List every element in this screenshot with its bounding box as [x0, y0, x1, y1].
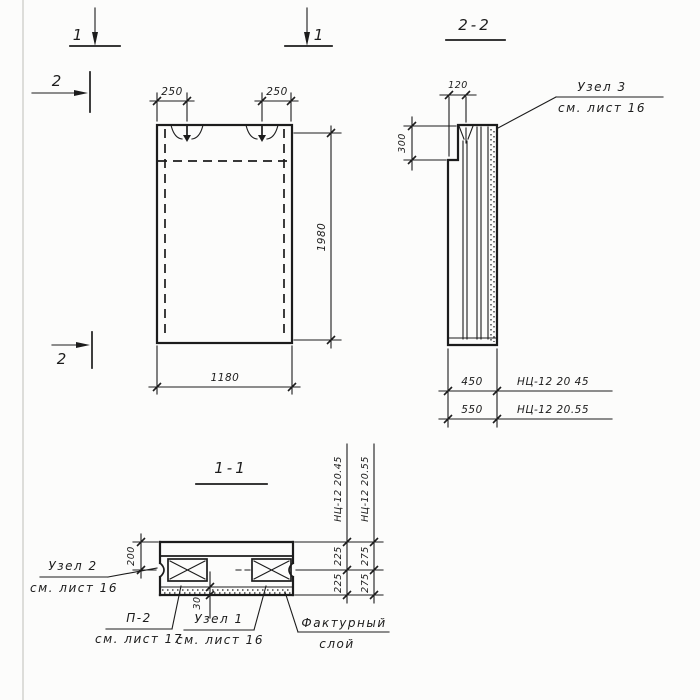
marker-label: 2: [52, 72, 63, 90]
channel-void: [168, 559, 207, 581]
section-marker-1-left: 1: [70, 8, 120, 46]
dim-width: 1180: [149, 346, 300, 394]
blueprint-canvas: 1 1 2 2: [0, 0, 700, 700]
lifting-loop-icon: [246, 125, 278, 142]
callout-facing-layer: Фактурный слой: [285, 592, 389, 651]
dim-275-a: 275: [360, 546, 371, 566]
callout-ref: слой: [319, 637, 354, 651]
dim-top: 250 250: [150, 86, 298, 121]
section-arrow-down-icon: [304, 32, 310, 46]
channel-void: [252, 559, 291, 581]
section-1-1: 1-1: [30, 444, 389, 651]
dim-1180: 1180: [211, 372, 240, 384]
dim-450: 450: [461, 376, 483, 388]
section-2-2: 2-2 120: [397, 16, 663, 427]
section-marker-2-bottom: 2: [52, 332, 92, 368]
dim-columns: 225 225 275 275 НЦ-12 20.45 НЦ-12 20.55: [295, 444, 383, 603]
section-title: 1-1: [214, 459, 248, 477]
section-marker-1-right: 1: [285, 8, 332, 46]
dim-225-b: 225: [333, 573, 344, 593]
marker-label: 1: [73, 26, 84, 44]
callout-title: Фактурный: [301, 616, 386, 630]
loop-groove-icon: [459, 126, 473, 143]
drawing-sheet: 1 1 2 2: [0, 0, 700, 700]
panel-outline: [157, 125, 292, 343]
section-arrow-down-icon: [92, 32, 98, 46]
dim-thickness-rows: 450 НЦ-12 20 45 550 НЦ-12 20.55: [439, 349, 612, 427]
dim-30: 30: [192, 596, 203, 609]
dim-300: 300: [397, 133, 408, 153]
dim-250-left: 250: [161, 86, 183, 98]
callout-ref: см. лист 16: [558, 101, 646, 115]
callout-node2: Узел 2 см. лист 16: [30, 559, 157, 595]
dim-275-b: 275: [360, 573, 371, 593]
callout-ref: см. лист 16: [30, 581, 118, 595]
mark-col-nc-12-20-55: НЦ-12 20.55: [360, 456, 371, 522]
dim-200: 200: [126, 546, 137, 566]
dim-height: 1980: [294, 126, 341, 348]
dim-edge-200: 200: [126, 534, 158, 578]
mark-col-nc-12-20-45: НЦ-12 20.45: [333, 456, 344, 522]
dim-550: 550: [461, 404, 483, 416]
callout-title: Узел 1: [194, 612, 243, 626]
marker-label: 1: [314, 26, 325, 44]
panel-section: [160, 542, 293, 595]
callout-ref: см. лист 16: [176, 633, 264, 647]
marker-label: 2: [57, 350, 68, 368]
callout-title: Узел 3: [577, 80, 626, 94]
section-title: 2-2: [458, 16, 492, 34]
callout-ref: см. лист 17: [95, 632, 183, 646]
callout-title: Узел 2: [48, 559, 97, 573]
joint-notch-left: [160, 563, 164, 577]
section-arrow-right-icon: [76, 342, 90, 348]
dim-120: 120: [448, 80, 468, 91]
front-view: 250 250 1980 1180: [149, 86, 341, 394]
callout-node3: Узел 3 см. лист 16: [498, 80, 663, 128]
dim-1980: 1980: [316, 223, 328, 252]
callout-title: П-2: [126, 611, 152, 625]
mark-nc-12-20-45: НЦ-12 20 45: [517, 376, 589, 388]
section-arrow-right-icon: [74, 90, 88, 96]
section-marker-2-top: 2: [32, 72, 90, 112]
section-profile: [448, 125, 497, 345]
dim-225-a: 225: [333, 546, 344, 566]
mark-nc-12-20-55: НЦ-12 20.55: [517, 404, 589, 416]
dim-250-right: 250: [266, 86, 288, 98]
lifting-loop-icon: [171, 125, 203, 142]
